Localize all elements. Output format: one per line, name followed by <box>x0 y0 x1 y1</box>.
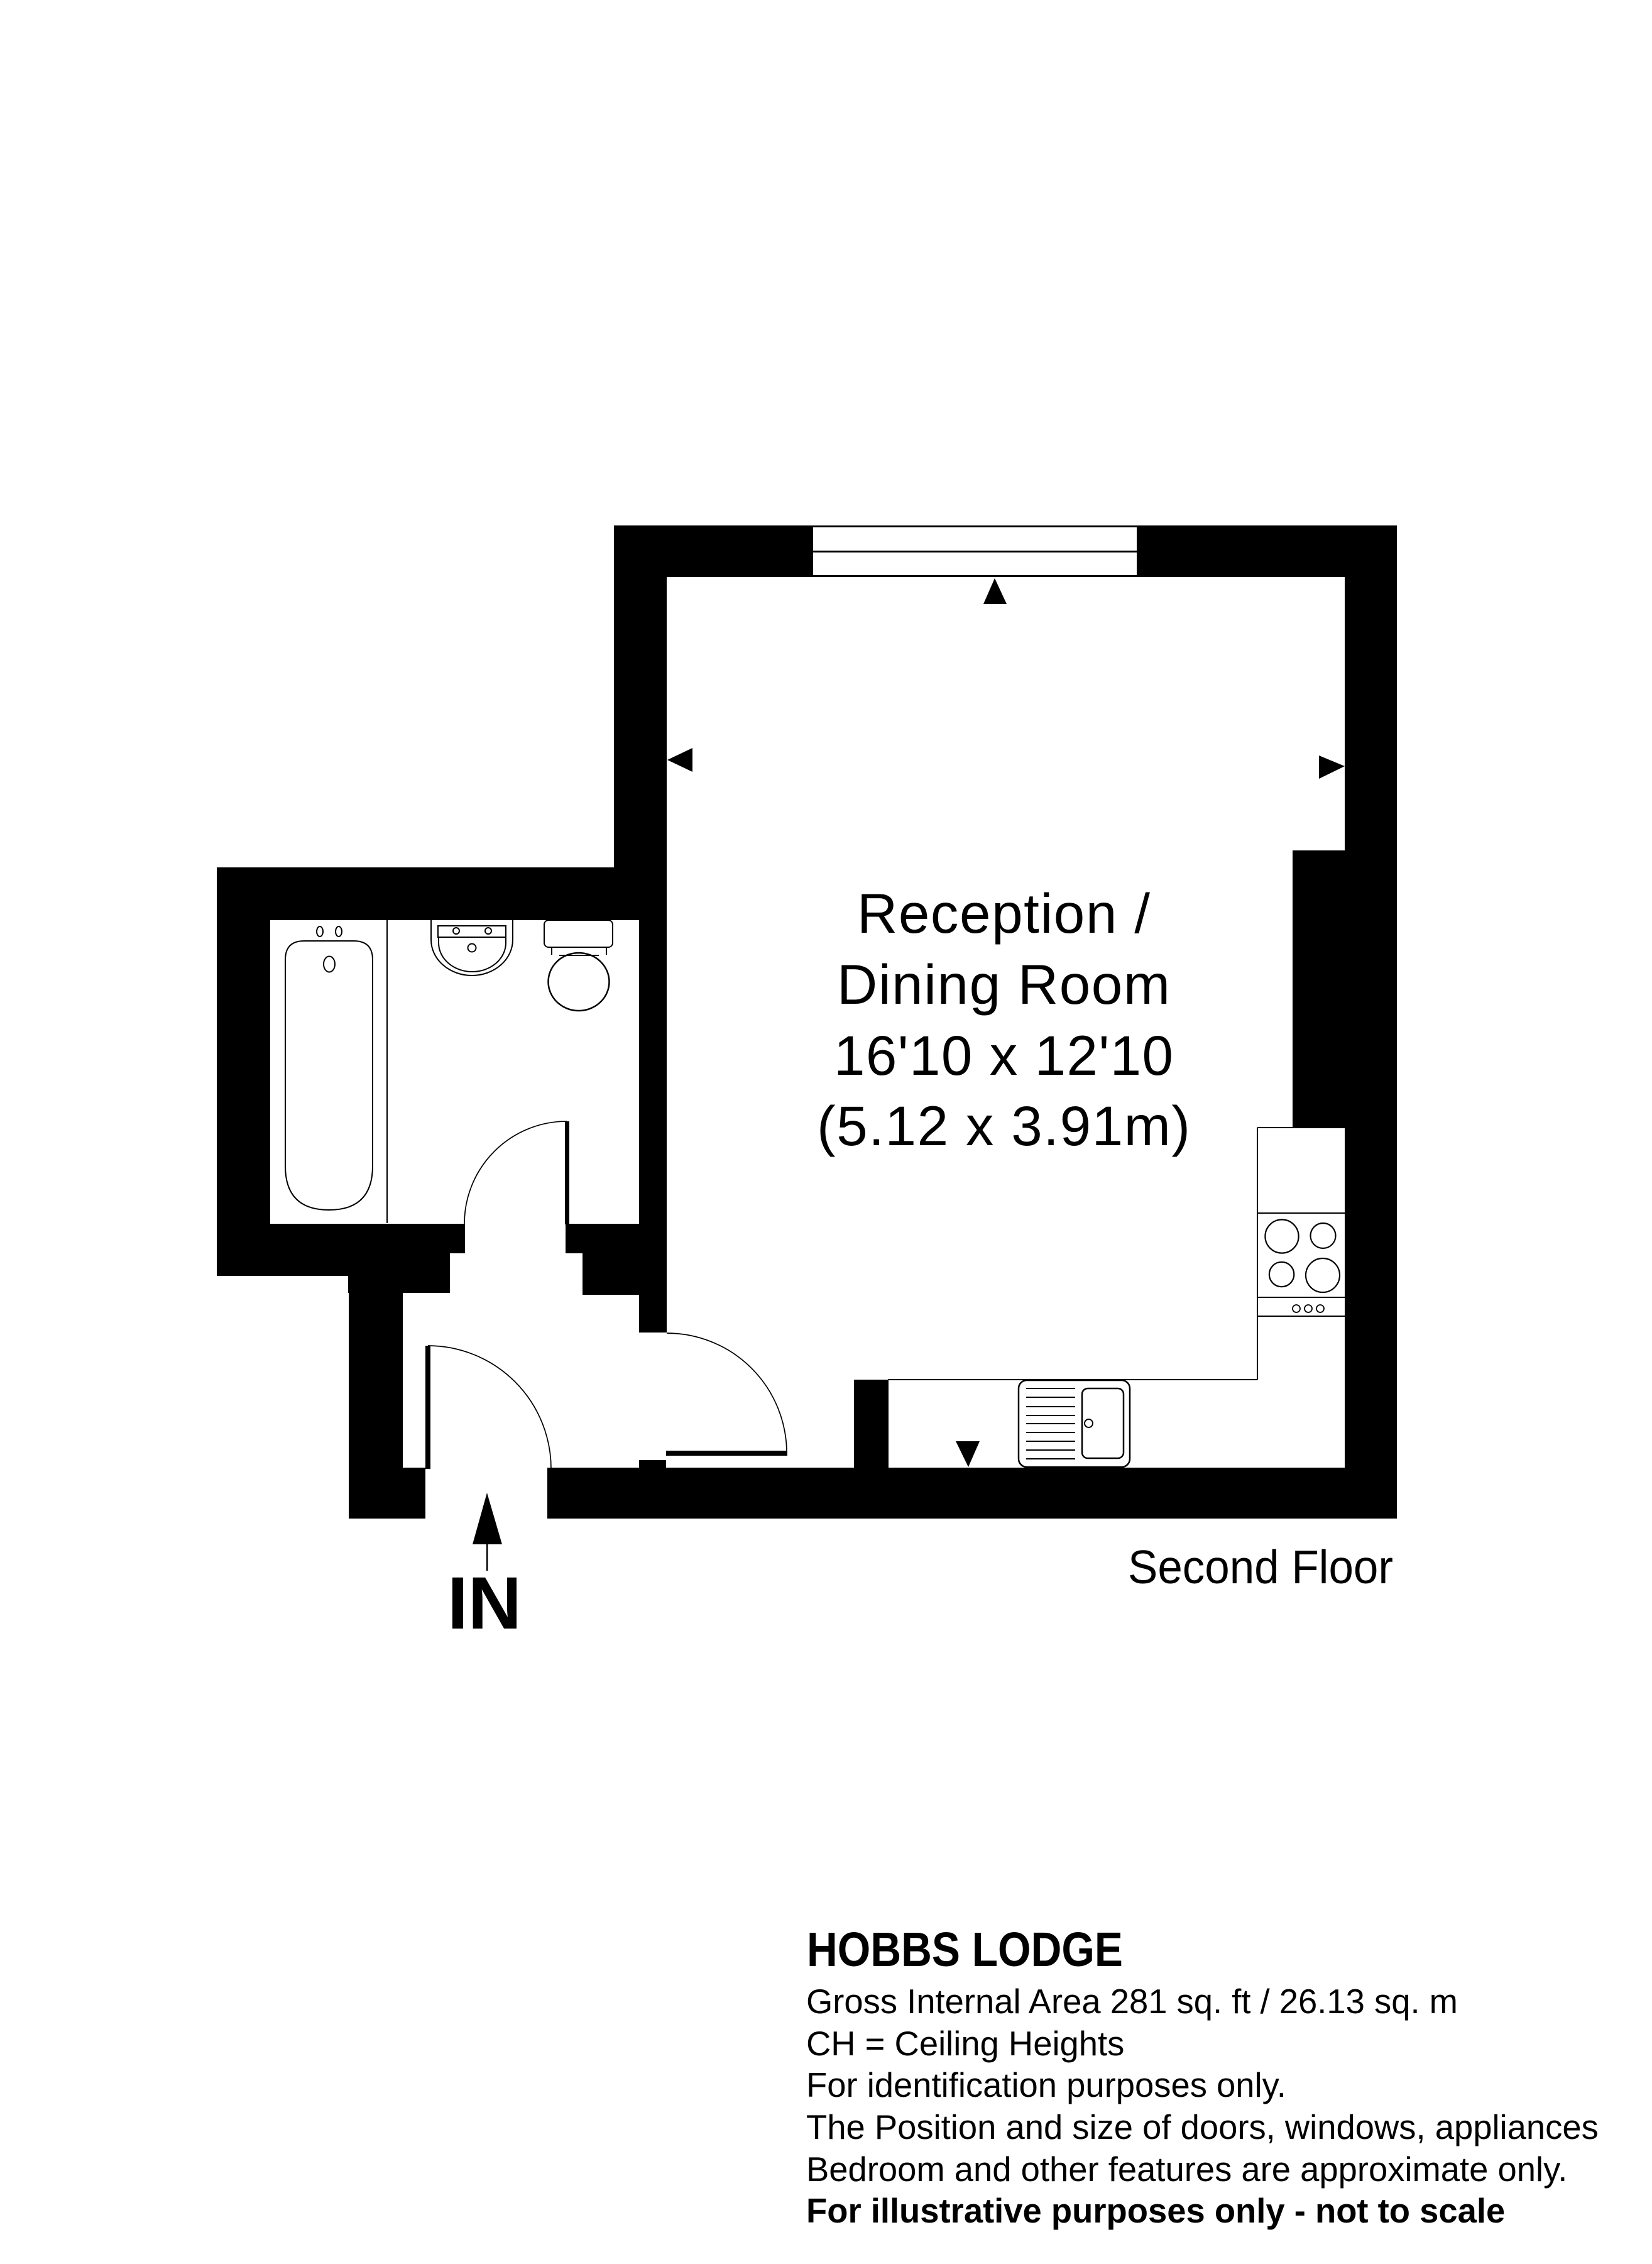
svg-text:Dining Room: Dining Room <box>837 953 1170 1016</box>
svg-text:The Position and size of doors: The Position and size of doors, windows,… <box>806 2108 1599 2146</box>
svg-text:(5.12 x 3.91m): (5.12 x 3.91m) <box>817 1094 1190 1157</box>
svg-text:IN: IN <box>447 1562 522 1645</box>
svg-text:16'10 x 12'10: 16'10 x 12'10 <box>834 1024 1173 1087</box>
svg-text:Reception /: Reception / <box>857 882 1150 945</box>
svg-text:CH = Ceiling Heights: CH = Ceiling Heights <box>806 2025 1124 2063</box>
svg-text:Second Floor: Second Floor <box>1128 1541 1393 1593</box>
svg-text:For identification purposes on: For identification purposes only. <box>806 2066 1286 2104</box>
svg-text:HOBBS LODGE: HOBBS LODGE <box>807 1923 1123 1977</box>
svg-text:For illustrative purposes only: For illustrative purposes only - not to … <box>806 2192 1505 2230</box>
svg-text:Bedroom and other features are: Bedroom and other features are approxima… <box>806 2150 1567 2189</box>
svg-text:Gross Internal Area 281 sq. ft: Gross Internal Area 281 sq. ft / 26.13 s… <box>806 1982 1458 2021</box>
